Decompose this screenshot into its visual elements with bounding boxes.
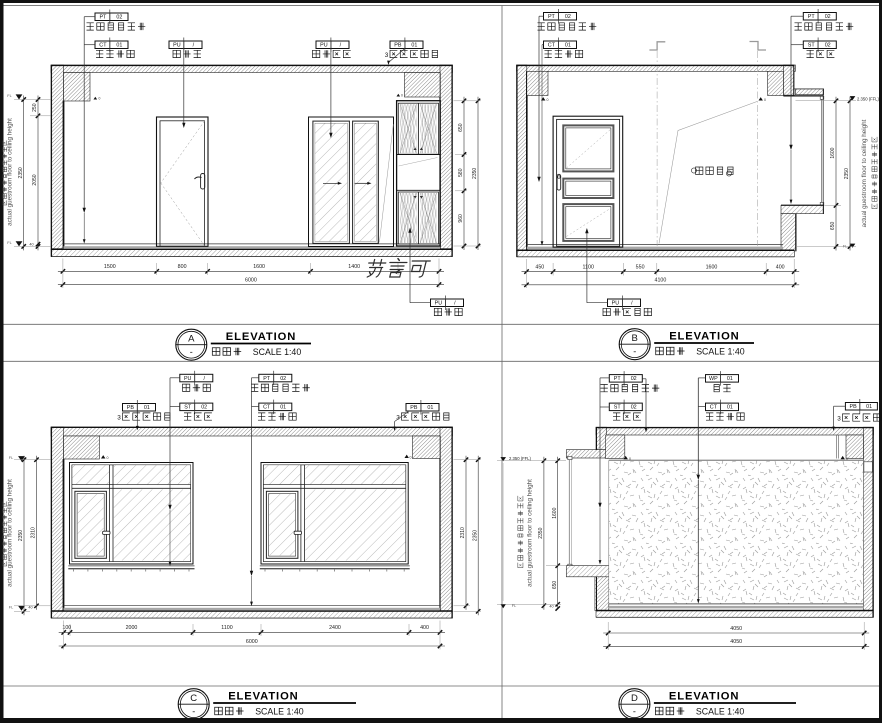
svg-text:FL: FL bbox=[9, 606, 13, 610]
svg-text:01: 01 bbox=[727, 405, 733, 411]
svg-text:A: A bbox=[188, 334, 195, 345]
svg-text:2350: 2350 bbox=[538, 527, 544, 538]
svg-text:2350: 2350 bbox=[472, 530, 478, 541]
svg-text:PT: PT bbox=[548, 14, 556, 20]
svg-text:ST: ST bbox=[614, 405, 622, 411]
svg-text:4100: 4100 bbox=[655, 278, 667, 284]
svg-text:4050: 4050 bbox=[730, 639, 742, 645]
svg-text:PT: PT bbox=[263, 376, 271, 382]
svg-text:PU: PU bbox=[435, 301, 443, 307]
svg-text:2310: 2310 bbox=[460, 527, 466, 538]
svg-text:1100: 1100 bbox=[221, 625, 232, 631]
svg-text:2400: 2400 bbox=[329, 625, 341, 631]
svg-text:2350: 2350 bbox=[472, 168, 478, 179]
svg-text:01: 01 bbox=[427, 405, 433, 411]
svg-text:1100: 1100 bbox=[583, 264, 594, 270]
svg-text:0: 0 bbox=[401, 94, 403, 98]
svg-text:550: 550 bbox=[636, 264, 645, 270]
svg-text:PT: PT bbox=[614, 376, 622, 382]
svg-text:0: 0 bbox=[547, 98, 549, 102]
svg-text:CT: CT bbox=[263, 405, 271, 411]
svg-text:PU: PU bbox=[320, 43, 328, 49]
svg-text:960: 960 bbox=[458, 214, 464, 223]
svg-text:580: 580 bbox=[458, 168, 464, 177]
svg-text:-: - bbox=[633, 347, 636, 357]
svg-text:ELEVATION: ELEVATION bbox=[228, 691, 298, 703]
svg-text:01: 01 bbox=[411, 43, 417, 49]
svg-text:C: C bbox=[190, 693, 197, 704]
svg-text:actual guestroom floor to ceil: actual guestroom floor to ceiling height bbox=[7, 479, 14, 587]
svg-text:SCALE 1:40: SCALE 1:40 bbox=[255, 707, 304, 717]
svg-text:650: 650 bbox=[458, 123, 464, 132]
svg-text:WP: WP bbox=[709, 376, 718, 382]
svg-text:D: D bbox=[631, 693, 638, 704]
svg-text:400: 400 bbox=[420, 625, 429, 631]
svg-text:PB: PB bbox=[127, 405, 135, 411]
svg-text:-: - bbox=[192, 707, 195, 717]
svg-text:1400: 1400 bbox=[348, 264, 360, 270]
svg-text:0: 0 bbox=[99, 97, 101, 101]
svg-text:CT: CT bbox=[710, 405, 718, 411]
svg-text:SCALE 1:40: SCALE 1:40 bbox=[253, 347, 302, 357]
svg-text:4050: 4050 bbox=[730, 626, 742, 632]
svg-text:PB: PB bbox=[849, 404, 857, 410]
svg-text:0: 0 bbox=[410, 456, 412, 460]
svg-text:CT: CT bbox=[548, 43, 556, 49]
svg-text:0: 0 bbox=[764, 98, 766, 102]
svg-text:01: 01 bbox=[144, 405, 150, 411]
svg-text:01: 01 bbox=[727, 376, 733, 382]
svg-text:01: 01 bbox=[866, 404, 872, 410]
svg-text:actual guestroom floor to ceil: actual guestroom floor to ceiling height bbox=[7, 118, 14, 226]
svg-text:SCALE 1:40: SCALE 1:40 bbox=[696, 347, 745, 357]
svg-text:ELEVATION: ELEVATION bbox=[669, 691, 739, 703]
svg-text:1500: 1500 bbox=[104, 264, 116, 270]
svg-text:02: 02 bbox=[825, 43, 831, 49]
svg-text:250: 250 bbox=[32, 103, 38, 112]
svg-text:01: 01 bbox=[565, 43, 571, 49]
svg-text:actual guestroom floor to ceil: actual guestroom floor to ceiling height bbox=[527, 479, 534, 587]
svg-text:2310: 2310 bbox=[31, 527, 37, 538]
svg-text:01: 01 bbox=[116, 43, 122, 49]
svg-text:0: 0 bbox=[107, 456, 109, 460]
svg-text:1600: 1600 bbox=[830, 147, 836, 158]
svg-text:2050: 2050 bbox=[32, 174, 38, 185]
svg-text:1600: 1600 bbox=[253, 264, 265, 270]
svg-text:PU: PU bbox=[173, 43, 181, 49]
svg-text:800: 800 bbox=[178, 264, 187, 270]
svg-text:PU: PU bbox=[612, 301, 620, 307]
svg-text:SCALE 1:40: SCALE 1:40 bbox=[696, 707, 745, 717]
svg-text:02: 02 bbox=[631, 376, 637, 382]
svg-text:ST: ST bbox=[184, 405, 192, 411]
svg-text:650: 650 bbox=[552, 581, 558, 590]
svg-text:02: 02 bbox=[565, 14, 571, 20]
svg-text:2.350 (FFL): 2.350 (FFL) bbox=[509, 456, 531, 461]
svg-text:2.350 (FFL): 2.350 (FFL) bbox=[857, 97, 879, 102]
svg-text:3: 3 bbox=[837, 416, 841, 423]
svg-text:40: 40 bbox=[549, 605, 553, 609]
svg-text:FL: FL bbox=[512, 604, 516, 608]
svg-text:2350: 2350 bbox=[18, 167, 24, 178]
svg-text:3: 3 bbox=[385, 52, 389, 59]
svg-text:2350: 2350 bbox=[844, 168, 850, 179]
svg-text:FL: FL bbox=[7, 241, 11, 245]
svg-text:-: - bbox=[633, 707, 636, 717]
svg-text:ELEVATION: ELEVATION bbox=[669, 331, 739, 343]
svg-text:40: 40 bbox=[29, 243, 33, 247]
svg-text:3: 3 bbox=[117, 415, 121, 422]
svg-text:PT: PT bbox=[99, 15, 107, 21]
svg-text:PB: PB bbox=[394, 43, 402, 49]
svg-text:PU: PU bbox=[184, 376, 192, 382]
svg-text:PT: PT bbox=[808, 14, 816, 20]
svg-text:650: 650 bbox=[830, 222, 836, 231]
svg-text:1600: 1600 bbox=[706, 264, 718, 270]
svg-text:ELEVATION: ELEVATION bbox=[226, 331, 296, 343]
svg-text:FL: FL bbox=[9, 456, 13, 460]
svg-text:01: 01 bbox=[280, 405, 286, 411]
svg-text:02: 02 bbox=[280, 376, 286, 382]
svg-text:1600: 1600 bbox=[552, 507, 558, 518]
svg-text:-: - bbox=[190, 347, 193, 357]
svg-text:PB: PB bbox=[410, 405, 418, 411]
svg-text:actual guestroom floor to ceil: actual guestroom floor to ceiling height bbox=[861, 119, 868, 227]
svg-text:02: 02 bbox=[825, 14, 831, 20]
svg-text:400: 400 bbox=[776, 264, 785, 270]
svg-text:6000: 6000 bbox=[245, 277, 257, 283]
svg-text:ST: ST bbox=[808, 43, 816, 49]
svg-text:B: B bbox=[632, 333, 638, 344]
svg-text:02: 02 bbox=[116, 15, 122, 21]
svg-text:FL: FL bbox=[7, 94, 11, 98]
svg-text:2350: 2350 bbox=[18, 530, 24, 541]
svg-text:02: 02 bbox=[201, 405, 207, 411]
svg-text:02: 02 bbox=[631, 405, 637, 411]
svg-text:2000: 2000 bbox=[126, 625, 138, 631]
svg-text:450: 450 bbox=[535, 264, 544, 270]
svg-text:CT: CT bbox=[99, 43, 107, 49]
svg-text:6000: 6000 bbox=[246, 639, 258, 645]
